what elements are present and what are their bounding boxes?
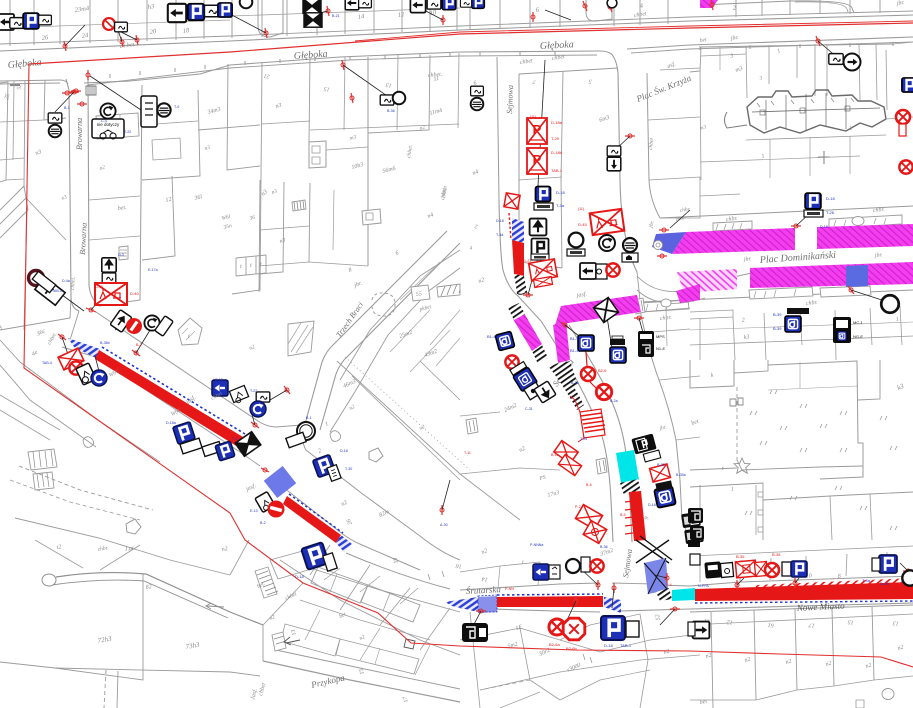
- svg-text:P-NN: P-NN: [505, 587, 514, 591]
- svg-text:52: 52: [655, 614, 662, 621]
- svg-text:B-1: B-1: [306, 416, 312, 420]
- svg-text:D-40: D-40: [130, 291, 139, 296]
- svg-text:Głęboka: Głęboka: [540, 39, 574, 52]
- svg-text:16: 16: [455, 562, 462, 569]
- svg-text:jbr.: jbr.: [874, 252, 883, 259]
- svg-text:N1-E: N1-E: [656, 346, 665, 351]
- svg-text:P-2: P-2: [575, 505, 581, 509]
- svg-text:B-35: B-35: [736, 554, 745, 559]
- svg-text:P-NNNa: P-NNNa: [530, 543, 543, 547]
- svg-text:B-5: B-5: [620, 513, 626, 517]
- svg-text:Browarna: Browarna: [78, 223, 89, 256]
- svg-text:T-0: T-0: [174, 105, 179, 109]
- svg-text:D-18: D-18: [604, 643, 613, 648]
- svg-text:T-3a: T-3a: [496, 233, 503, 237]
- svg-text:B1-43: B1-43: [570, 348, 581, 353]
- svg-text:TAB-1: TAB-1: [620, 643, 632, 648]
- svg-text:jbr.: jbr.: [895, 0, 905, 7]
- svg-text:chbr.: chbr.: [660, 315, 672, 322]
- svg-text:T-11: T-11: [464, 451, 471, 455]
- svg-text:82: 82: [145, 584, 152, 591]
- svg-text:1-23: 1-23: [524, 259, 531, 263]
- svg-text:TAB-1: TAB-1: [52, 289, 62, 293]
- svg-text:jbr.: jbr.: [743, 256, 752, 263]
- svg-text:B-36: B-36: [600, 545, 608, 549]
- svg-text:B-1a: B-1a: [551, 453, 559, 457]
- svg-text:D-18: D-18: [880, 581, 889, 586]
- svg-text:T-3a: T-3a: [556, 203, 565, 208]
- svg-text:D-45: D-45: [578, 222, 587, 227]
- svg-text:P-4: P-4: [666, 583, 672, 587]
- svg-text:B2-6: B2-6: [598, 368, 607, 373]
- svg-text:T-22: T-22: [124, 130, 131, 134]
- svg-text:B-6: B-6: [586, 483, 592, 487]
- svg-text:12: 12: [727, 618, 734, 625]
- svg-text:NG-E: NG-E: [853, 334, 863, 339]
- svg-text:15: 15: [848, 618, 855, 625]
- svg-text:B-35: B-35: [657, 463, 665, 467]
- svg-text:C-4: C-4: [101, 119, 107, 123]
- svg-text:D-18: D-18: [826, 196, 835, 201]
- svg-text:TAB-4: TAB-4: [42, 361, 52, 365]
- svg-text:chbet.: chbet.: [70, 277, 77, 291]
- svg-text:61: 61: [768, 621, 775, 628]
- svg-text:k3: k3: [743, 334, 749, 341]
- svg-text:D-3: D-3: [118, 253, 124, 257]
- svg-text:D-18: D-18: [556, 190, 565, 195]
- svg-text:Sejmowa: Sejmowa: [505, 85, 515, 114]
- svg-text:14: 14: [481, 575, 488, 583]
- svg-text:B-2: B-2: [136, 343, 142, 347]
- svg-text:B1-43: B1-43: [570, 336, 581, 341]
- svg-text:D-18: D-18: [340, 449, 348, 453]
- svg-text:chbr.: chbr.: [806, 300, 818, 307]
- svg-text:T-3a: T-3a: [862, 578, 871, 583]
- svg-text:T-26: T-26: [826, 210, 835, 215]
- svg-text:T-29: T-29: [551, 136, 560, 141]
- svg-text:B-39: B-39: [773, 326, 782, 331]
- svg-text:A-30: A-30: [440, 523, 448, 527]
- svg-text:chbr.: chbr.: [873, 207, 885, 214]
- svg-text:B-2: B-2: [260, 521, 266, 525]
- svg-text:n2: n2: [221, 546, 228, 553]
- svg-text:C-31: C-31: [525, 407, 533, 411]
- svg-text:T-1: T-1: [232, 437, 237, 441]
- svg-text:jbr.: jbr.: [729, 35, 739, 42]
- svg-text:21: 21: [263, 72, 270, 79]
- svg-text:D-18: D-18: [820, 225, 828, 229]
- svg-text:T-25: T-25: [580, 437, 587, 441]
- svg-text:A-30: A-30: [760, 587, 768, 591]
- svg-text:MC-1: MC-1: [853, 320, 864, 325]
- svg-text:bet.: bet.: [117, 205, 127, 212]
- svg-text:B-36b: B-36b: [100, 341, 110, 345]
- svg-text:D-40: D-40: [95, 285, 103, 289]
- svg-text:13: 13: [385, 81, 392, 88]
- svg-text:N-PPA: N-PPA: [698, 584, 709, 588]
- svg-text:chbet: chbet: [648, 137, 655, 150]
- svg-text:chbr.: chbr.: [726, 216, 738, 223]
- svg-text:B-2a: B-2a: [610, 399, 618, 403]
- svg-text:(11): (11): [578, 207, 584, 211]
- svg-text:T-22: T-22: [250, 389, 257, 393]
- svg-text:(11): (11): [530, 115, 536, 119]
- svg-text:B1-43: B1-43: [487, 334, 498, 339]
- svg-text:D-18: D-18: [648, 503, 656, 507]
- svg-text:B-36: B-36: [772, 552, 781, 557]
- svg-text:13: 13: [893, 619, 900, 626]
- svg-text:B2-6a: B2-6a: [549, 642, 560, 647]
- svg-text:E-13: E-13: [250, 509, 258, 513]
- svg-text:T-30: T-30: [345, 467, 352, 471]
- svg-text:B2-6b: B2-6b: [566, 646, 577, 651]
- svg-text:MPS: MPS: [656, 334, 665, 339]
- svg-text:bet: bet: [699, 37, 707, 44]
- svg-text:C-12: C-12: [215, 378, 223, 382]
- svg-text:E-17a: E-17a: [148, 268, 158, 272]
- svg-text:55: 55: [415, 291, 422, 298]
- svg-text:D-4a: D-4a: [62, 279, 70, 283]
- svg-text:TAB-1: TAB-1: [551, 168, 563, 173]
- svg-text:D-18a: D-18a: [551, 120, 563, 125]
- svg-text:D-18: D-18: [496, 219, 504, 223]
- svg-text:D-18b: D-18b: [551, 150, 563, 155]
- svg-text:B-1: B-1: [64, 106, 70, 110]
- svg-text:Browarna: Browarna: [75, 118, 84, 150]
- svg-text:B-39: B-39: [773, 312, 782, 317]
- svg-text:B-35a: B-35a: [676, 473, 686, 477]
- svg-text:15: 15: [323, 85, 330, 92]
- svg-text:B-36: B-36: [387, 109, 395, 113]
- svg-text:B-21: B-21: [332, 14, 340, 18]
- svg-text:B-36: B-36: [571, 381, 579, 385]
- svg-text:D-18: D-18: [295, 574, 304, 579]
- svg-text:D-18a: D-18a: [166, 421, 176, 425]
- svg-text:Śrutarska: Śrutarska: [466, 584, 502, 596]
